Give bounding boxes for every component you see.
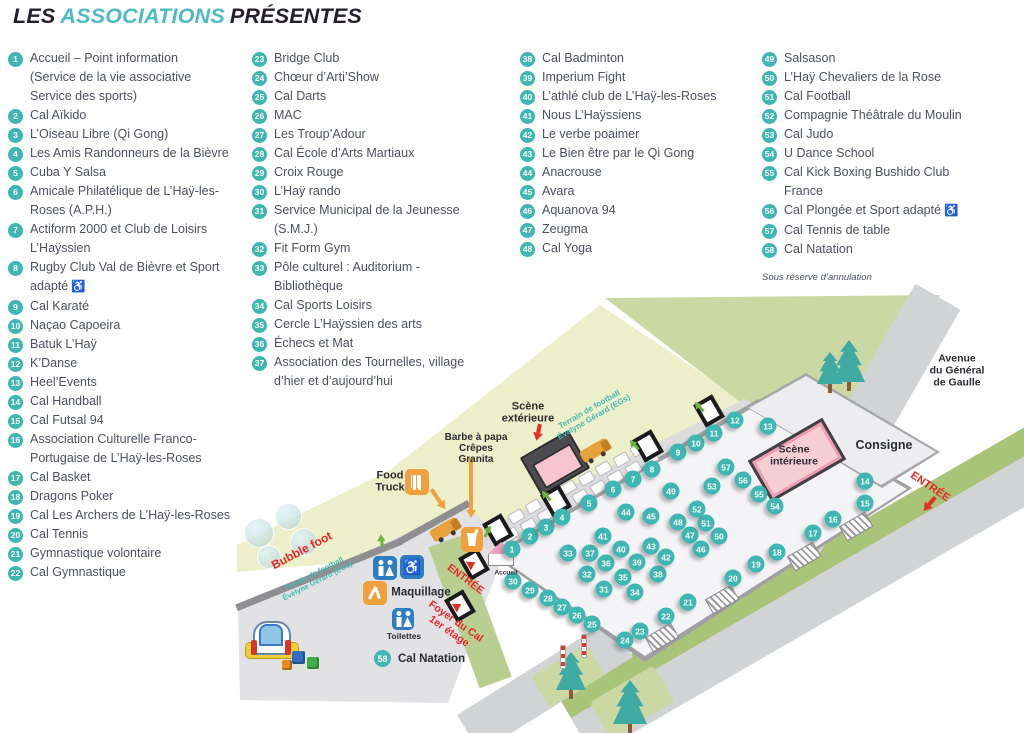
association-name: Cal Badminton xyxy=(542,49,624,68)
association-name: L’Oiseau Libre (Qi Gong) xyxy=(30,125,168,144)
association-number: 58 xyxy=(762,243,777,258)
association-item-41: 41Nous L’Haÿssiens xyxy=(520,106,762,125)
association-number: 56 xyxy=(762,204,777,219)
association-name: K’Danse xyxy=(30,354,77,373)
association-item-44: 44Anacrouse xyxy=(520,163,762,182)
association-name: Bridge Club xyxy=(274,49,339,68)
association-number: 2 xyxy=(8,109,23,124)
association-number: 16 xyxy=(8,433,23,448)
association-item-22: 22Cal Gymnastique xyxy=(8,563,250,582)
map-stand-marker-43: 43 xyxy=(643,538,660,555)
association-name: Cal Judo xyxy=(784,125,833,144)
association-name: Gymnastique volontaire xyxy=(30,544,161,563)
association-name: Chœur d’Arti’Show xyxy=(274,68,379,87)
map-stand-marker-50: 50 xyxy=(711,528,728,545)
association-number: 3 xyxy=(8,128,23,143)
association-number: 9 xyxy=(8,300,23,315)
association-name: Le verbe poaimer xyxy=(542,125,639,144)
map-label-barbe-a-papa: Barbe à papaCrêpesGranita xyxy=(445,432,508,466)
association-name: Cal Basket xyxy=(30,468,90,487)
association-name: Cal Tennis de table xyxy=(784,221,890,240)
association-number: 50 xyxy=(762,71,777,86)
map-stand-marker-41: 41 xyxy=(595,528,612,545)
tree-4 xyxy=(613,680,647,733)
map-stand-marker-20: 20 xyxy=(725,570,742,587)
association-name: Nous L’Haÿssiens xyxy=(542,106,641,125)
map-stand-marker-51: 51 xyxy=(698,515,715,532)
play-cube-orange xyxy=(282,660,292,670)
association-number: 34 xyxy=(252,299,267,314)
wc-icon xyxy=(373,556,397,580)
association-name: Batuk L’Haÿ xyxy=(30,335,97,354)
association-item-50: 50L’Haÿ Chevaliers de la Rose xyxy=(762,68,1024,87)
association-number: 19 xyxy=(8,509,23,524)
face-painting-icon xyxy=(363,581,387,605)
food-truck-icon xyxy=(405,469,429,495)
association-number: 31 xyxy=(252,204,267,219)
wheelchair-access-icon: ♿ xyxy=(400,555,424,579)
association-item-58: 58Cal Natation xyxy=(762,240,1024,259)
map-stand-marker-2: 2 xyxy=(522,528,539,545)
association-item-42: 42Le verbe poaimer xyxy=(520,125,762,144)
association-name: MAC xyxy=(274,106,302,125)
association-number: 46 xyxy=(520,204,535,219)
map-stand-marker-47: 47 xyxy=(682,527,699,544)
association-name: Anacrouse xyxy=(542,163,602,182)
association-item-13: 13Heel’Events xyxy=(8,373,250,392)
associations-column-2: 23Bridge Club24Chœur d’Arti’Show25Cal Da… xyxy=(252,49,518,391)
map-stand-marker-42: 42 xyxy=(658,549,675,566)
association-name: Association des Tournelles, villaged’hie… xyxy=(274,353,464,391)
barrier-pole-2 xyxy=(581,634,587,658)
association-number: 17 xyxy=(8,471,23,486)
association-item-53: 53Cal Judo xyxy=(762,125,1024,144)
map-stand-marker-40: 40 xyxy=(613,541,630,558)
associations-column-1: 1Accueil – Point information(Service de … xyxy=(8,49,250,582)
map-stand-marker-52: 52 xyxy=(689,501,706,518)
association-name: Service Municipal de la Jeunesse(S.M.J.) xyxy=(274,201,460,239)
association-name: Cal Sports Loisirs xyxy=(274,296,372,315)
association-number: 37 xyxy=(252,356,267,371)
association-name: Dragons Poker xyxy=(30,487,113,506)
association-number: 18 xyxy=(8,490,23,505)
map-stand-marker-49: 49 xyxy=(663,483,680,500)
castle-pillar-right xyxy=(285,640,291,655)
association-number: 55 xyxy=(762,166,777,181)
association-item-23: 23Bridge Club xyxy=(252,49,518,68)
map-stand-marker-28: 28 xyxy=(540,590,557,607)
association-number: 28 xyxy=(252,147,267,162)
castle-pillar-left xyxy=(251,640,257,655)
association-item-32: 32Fit Form Gym xyxy=(252,239,518,258)
association-name: Cal Football xyxy=(784,87,851,106)
association-item-1: 1Accueil – Point information(Service de … xyxy=(8,49,250,106)
map-stand-marker-14: 14 xyxy=(857,473,874,490)
association-item-6: 6Amicale Philatélique de L’Haÿ-les-Roses… xyxy=(8,182,250,220)
association-item-37: 37Association des Tournelles, villaged’h… xyxy=(252,353,518,391)
map-stand-marker-53: 53 xyxy=(704,478,721,495)
association-number: 22 xyxy=(8,566,23,581)
map-stand-marker-36: 36 xyxy=(598,555,615,572)
association-item-9: 9Cal Karaté xyxy=(8,297,250,316)
map-stand-marker-3: 3 xyxy=(538,519,555,536)
map-label-food-truck: FoodTruck xyxy=(375,470,404,495)
map-stand-marker-31: 31 xyxy=(596,581,613,598)
association-number: 54 xyxy=(762,147,777,162)
association-number: 6 xyxy=(8,185,23,200)
association-name: L’Haÿ Chevaliers de la Rose xyxy=(784,68,941,87)
title-associations: ASSOCIATIONS xyxy=(60,4,224,28)
association-item-47: 47Zeugma xyxy=(520,220,762,239)
association-item-51: 51Cal Football xyxy=(762,87,1024,106)
play-cube-green xyxy=(307,657,319,669)
association-number: 15 xyxy=(8,414,23,429)
association-item-45: 45Avara xyxy=(520,182,762,201)
association-item-43: 43Le Bien être par le Qi Gong xyxy=(520,144,762,163)
association-number: 33 xyxy=(252,261,267,276)
fork-glyph xyxy=(413,475,416,490)
map-stand-marker-38: 38 xyxy=(650,566,667,583)
association-number: 23 xyxy=(252,52,267,67)
man-glyph xyxy=(395,611,402,627)
association-name: Croix Rouge xyxy=(274,163,343,182)
association-item-38: 38Cal Badminton xyxy=(520,49,762,68)
legend-58-badge: 58 xyxy=(374,650,391,667)
association-number: 14 xyxy=(8,395,23,410)
association-item-49: 49Salsason xyxy=(762,49,1024,68)
association-item-34: 34Cal Sports Loisirs xyxy=(252,296,518,315)
knife-glyph xyxy=(418,475,421,490)
association-number: 36 xyxy=(252,337,267,352)
association-name: Heel’Events xyxy=(30,373,97,392)
association-item-14: 14Cal Handball xyxy=(8,392,250,411)
association-number: 40 xyxy=(520,90,535,105)
map-stand-marker-44: 44 xyxy=(618,504,635,521)
associations-column-4: 49Salsason50L’Haÿ Chevaliers de la Rose5… xyxy=(762,49,1024,283)
association-name: Les Amis Randonneurs de la Bièvre xyxy=(30,144,229,163)
association-name: Cal Natation xyxy=(784,240,853,259)
map-stand-marker-29: 29 xyxy=(522,582,539,599)
association-name: Association Culturelle Franco-Portugaise… xyxy=(30,430,202,468)
man-glyph xyxy=(377,560,384,576)
map-stand-marker-17: 17 xyxy=(805,525,822,542)
exit-arrow-5 xyxy=(377,534,386,542)
snacks-pointer-arrow xyxy=(469,458,473,510)
association-number: 11 xyxy=(8,338,23,353)
association-number: 45 xyxy=(520,185,535,200)
map-label-maquillage: Maquillage xyxy=(391,587,450,600)
map-stand-marker-13: 13 xyxy=(760,418,777,435)
map-stand-marker-37: 37 xyxy=(582,545,599,562)
map-stand-marker-12: 12 xyxy=(727,412,744,429)
map-stand-marker-45: 45 xyxy=(643,508,660,525)
association-name: Cal Futsal 94 xyxy=(30,411,104,430)
map-label-accueil: Accueil xyxy=(494,569,517,576)
association-number: 41 xyxy=(520,109,535,124)
map-stand-marker-32: 32 xyxy=(579,566,596,583)
page: LESASSOCIATIONSPRÉSENTES 1Accueil – Poin… xyxy=(0,0,1024,733)
map-label-scene-exterieure: Scèneextérieure xyxy=(502,401,555,426)
map-stand-marker-39: 39 xyxy=(629,554,646,571)
association-number: 21 xyxy=(8,547,23,562)
association-item-48: 48Cal Yoga xyxy=(520,239,762,258)
association-name: Imperium Fight xyxy=(542,68,625,87)
wheelchair-icon: ♿ xyxy=(71,281,85,293)
association-number: 51 xyxy=(762,90,777,105)
tree-2 xyxy=(833,340,865,391)
association-item-26: 26MAC xyxy=(252,106,518,125)
association-name: Cal Plongée et Sport adapté♿ xyxy=(784,201,958,221)
association-name: Rugby Club Val de Bièvre et Sportadapté♿ xyxy=(30,258,219,297)
association-name: Cal École d’Arts Martiaux xyxy=(274,144,414,163)
association-number: 25 xyxy=(252,90,267,105)
map-stand-marker-1: 1 xyxy=(504,541,521,558)
association-item-46: 46Aquanova 94 xyxy=(520,201,762,220)
map-stand-marker-10: 10 xyxy=(688,435,705,452)
association-name: Naçao Capoeira xyxy=(30,316,120,335)
association-number: 47 xyxy=(520,223,535,238)
association-item-24: 24Chœur d’Arti’Show xyxy=(252,68,518,87)
association-name: Zeugma xyxy=(542,220,588,239)
association-number: 43 xyxy=(520,147,535,162)
barrier-pole-1 xyxy=(560,645,566,669)
association-item-27: 27Les Troup’Adour xyxy=(252,125,518,144)
association-number: 42 xyxy=(520,128,535,143)
association-item-35: 35Cercle L’Haÿssien des arts xyxy=(252,315,518,334)
association-name: Cal Aïkido xyxy=(30,106,86,125)
map-stand-marker-19: 19 xyxy=(748,556,765,573)
title-presentes: PRÉSENTES xyxy=(230,4,362,28)
page-title: LESASSOCIATIONSPRÉSENTES xyxy=(13,4,362,29)
association-item-57: 57Cal Tennis de table xyxy=(762,221,1024,240)
association-item-40: 40L’athlé club de L’Haÿ-les-Roses xyxy=(520,87,762,106)
map-stand-marker-22: 22 xyxy=(658,608,675,625)
map-stand-marker-25: 25 xyxy=(584,616,601,633)
association-item-25: 25Cal Darts xyxy=(252,87,518,106)
association-number: 8 xyxy=(8,261,23,276)
association-number: 49 xyxy=(762,52,777,67)
association-name: Cal Les Archers de L’Haÿ-les-Roses xyxy=(30,506,230,525)
toilets-icon xyxy=(392,608,414,630)
association-item-5: 5Cuba Y Salsa xyxy=(8,163,250,182)
association-number: 7 xyxy=(8,223,23,238)
association-item-19: 19Cal Les Archers de L’Haÿ-les-Roses xyxy=(8,506,250,525)
legend-58-label: Cal Natation xyxy=(398,653,465,665)
map-stand-marker-23: 23 xyxy=(632,623,649,640)
association-item-55: 55Cal Kick Boxing Bushido ClubFrance xyxy=(762,163,1024,201)
association-number: 32 xyxy=(252,242,267,257)
association-number: 1 xyxy=(8,52,23,67)
association-item-30: 30L’Haÿ rando xyxy=(252,182,518,201)
map-stand-marker-7: 7 xyxy=(625,471,642,488)
association-number: 48 xyxy=(520,242,535,257)
association-number: 10 xyxy=(8,319,23,334)
association-name: Cal Darts xyxy=(274,87,326,106)
title-les: LES xyxy=(13,4,55,28)
association-item-29: 29Croix Rouge xyxy=(252,163,518,182)
association-name: Actiform 2000 et Club de LoisirsL’Haÿssi… xyxy=(30,220,207,258)
association-number: 35 xyxy=(252,318,267,333)
play-cube-blue xyxy=(292,651,305,664)
wheelchair-icon: ♿ xyxy=(944,205,958,217)
association-item-39: 39Imperium Fight xyxy=(520,68,762,87)
association-number: 27 xyxy=(252,128,267,143)
cancellation-footnote: Sous réserve d’annulation xyxy=(762,272,1024,283)
map-stand-marker-5: 5 xyxy=(581,495,598,512)
associations-column-3: 38Cal Badminton39Imperium Fight40L’athlé… xyxy=(520,49,762,258)
association-name: Cal Handball xyxy=(30,392,102,411)
association-name: L’Haÿ rando xyxy=(274,182,341,201)
association-name: Cal Yoga xyxy=(542,239,592,258)
map-stand-marker-54: 54 xyxy=(767,498,784,515)
association-item-56: 56Cal Plongée et Sport adapté♿ xyxy=(762,201,1024,221)
map-label-consigne: Consigne xyxy=(856,438,913,452)
map-stand-marker-27: 27 xyxy=(554,599,571,616)
association-item-20: 20Cal Tennis xyxy=(8,525,250,544)
association-name: Cuba Y Salsa xyxy=(30,163,106,182)
association-name: Cercle L’Haÿssien des arts xyxy=(274,315,422,334)
association-item-21: 21Gymnastique volontaire xyxy=(8,544,250,563)
map-stand-marker-46: 46 xyxy=(693,541,710,558)
association-number: 29 xyxy=(252,166,267,181)
association-name: Cal Tennis xyxy=(30,525,88,544)
map-stand-marker-16: 16 xyxy=(825,511,842,528)
map-stand-marker-34: 34 xyxy=(627,584,644,601)
association-number: 13 xyxy=(8,376,23,391)
association-number: 20 xyxy=(8,528,23,543)
association-number: 4 xyxy=(8,147,23,162)
association-item-7: 7Actiform 2000 et Club de LoisirsL’Haÿss… xyxy=(8,220,250,258)
map-stand-marker-26: 26 xyxy=(569,607,586,624)
association-name: Aquanova 94 xyxy=(542,201,616,220)
association-number: 39 xyxy=(520,71,535,86)
map-stand-marker-6: 6 xyxy=(605,481,622,498)
bubble-1 xyxy=(244,518,274,548)
map-stand-marker-24: 24 xyxy=(617,632,634,649)
map-stand-marker-33: 33 xyxy=(560,545,577,562)
association-item-18: 18Dragons Poker xyxy=(8,487,250,506)
drinks-stand-icon xyxy=(461,527,483,552)
map-stand-marker-11: 11 xyxy=(706,425,723,442)
association-item-11: 11Batuk L’Haÿ xyxy=(8,335,250,354)
association-name: Amicale Philatélique de L’Haÿ-les-Roses … xyxy=(30,182,219,220)
association-name: Cal Kick Boxing Bushido ClubFrance xyxy=(784,163,949,201)
association-item-4: 4Les Amis Randonneurs de la Bièvre xyxy=(8,144,250,163)
map-stand-marker-4: 4 xyxy=(554,509,571,526)
map-stand-marker-15: 15 xyxy=(857,495,874,512)
map-legend-58: 58 Cal Natation xyxy=(374,650,465,667)
map-stand-marker-18: 18 xyxy=(769,544,786,561)
association-item-36: 36Échecs et Mat xyxy=(252,334,518,353)
map-label-scene-interieure: Scèneintérieure xyxy=(770,444,818,468)
map-stand-marker-8: 8 xyxy=(644,461,661,478)
association-name: Le Bien être par le Qi Gong xyxy=(542,144,694,163)
association-item-28: 28Cal École d’Arts Martiaux xyxy=(252,144,518,163)
association-name: Pôle culturel : Auditorium -Bibliothèque xyxy=(274,258,420,296)
association-number: 12 xyxy=(8,357,23,372)
association-name: Cal Karaté xyxy=(30,297,89,316)
association-item-3: 3L’Oiseau Libre (Qi Gong) xyxy=(8,125,250,144)
association-item-33: 33Pôle culturel : Auditorium -Bibliothèq… xyxy=(252,258,518,296)
association-number: 38 xyxy=(520,52,535,67)
map-stand-marker-56: 56 xyxy=(735,472,752,489)
map-stand-marker-21: 21 xyxy=(680,594,697,611)
pencil-glyph xyxy=(374,587,381,599)
bubble-2 xyxy=(275,503,302,530)
association-name: U Dance School xyxy=(784,144,874,163)
association-number: 57 xyxy=(762,224,777,239)
map-label-toilettes: Toilettes xyxy=(387,632,421,642)
association-number: 24 xyxy=(252,71,267,86)
association-item-8: 8Rugby Club Val de Bièvre et Sportadapté… xyxy=(8,258,250,297)
map-label-avenue: Avenuedu Généralde Gaulle xyxy=(930,353,985,388)
association-name: Échecs et Mat xyxy=(274,334,353,353)
map-stand-marker-55: 55 xyxy=(751,486,768,503)
woman-glyph xyxy=(386,560,393,576)
association-item-16: 16Association Culturelle Franco-Portugai… xyxy=(8,430,250,468)
association-name: L’athlé club de L’Haÿ-les-Roses xyxy=(542,87,716,106)
map-stand-marker-35: 35 xyxy=(615,569,632,586)
association-item-10: 10Naçao Capoeira xyxy=(8,316,250,335)
association-number: 44 xyxy=(520,166,535,181)
association-item-12: 12K’Danse xyxy=(8,354,250,373)
woman-glyph xyxy=(404,611,411,627)
association-name: Compagnie Théâtrale du Moulin xyxy=(784,106,962,125)
association-item-52: 52Compagnie Théâtrale du Moulin xyxy=(762,106,1024,125)
association-name: Avara xyxy=(542,182,574,201)
association-name: Fit Form Gym xyxy=(274,239,350,258)
association-name: Accueil – Point information(Service de l… xyxy=(30,49,191,106)
map-stand-marker-9: 9 xyxy=(670,444,687,461)
association-number: 53 xyxy=(762,128,777,143)
map-stand-marker-48: 48 xyxy=(670,514,687,531)
association-name: Cal Gymnastique xyxy=(30,563,126,582)
association-item-54: 54U Dance School xyxy=(762,144,1024,163)
association-number: 52 xyxy=(762,109,777,124)
association-item-31: 31Service Municipal de la Jeunesse(S.M.J… xyxy=(252,201,518,239)
association-name: Salsason xyxy=(784,49,835,68)
association-number: 26 xyxy=(252,109,267,124)
association-number: 5 xyxy=(8,166,23,181)
association-item-15: 15Cal Futsal 94 xyxy=(8,411,250,430)
association-name: Les Troup’Adour xyxy=(274,125,366,144)
association-item-2: 2Cal Aïkido xyxy=(8,106,250,125)
association-item-17: 17Cal Basket xyxy=(8,468,250,487)
association-number: 30 xyxy=(252,185,267,200)
castle-panel xyxy=(259,624,283,646)
map-stand-marker-57: 57 xyxy=(718,459,735,476)
